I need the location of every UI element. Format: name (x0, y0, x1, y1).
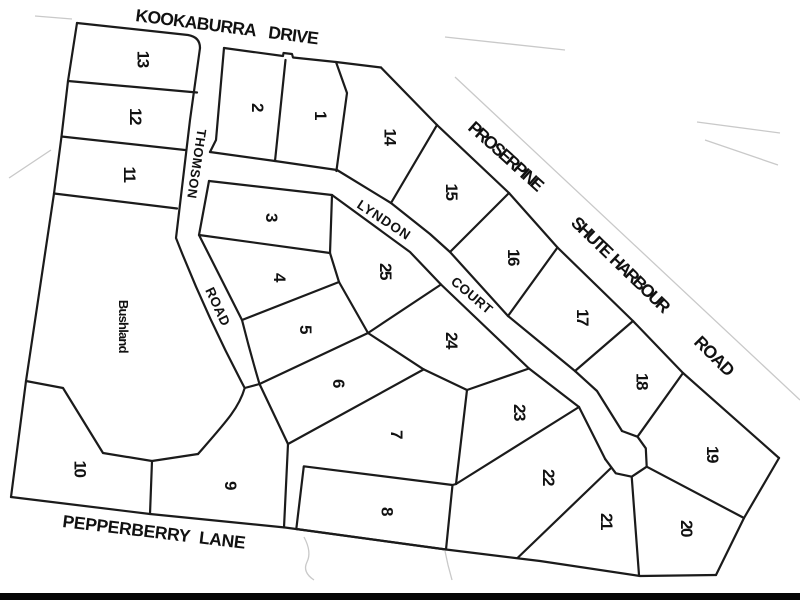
svg-text:19: 19 (703, 446, 722, 463)
svg-text:17: 17 (573, 309, 592, 326)
svg-text:13: 13 (134, 51, 153, 68)
svg-text:20: 20 (677, 520, 696, 537)
svg-text:22: 22 (539, 469, 558, 486)
svg-text:16: 16 (504, 249, 523, 266)
svg-text:21: 21 (597, 513, 616, 530)
svg-text:6: 6 (329, 379, 348, 388)
svg-text:25: 25 (376, 263, 395, 280)
svg-text:5: 5 (296, 325, 315, 334)
svg-text:1: 1 (311, 111, 330, 120)
svg-text:23: 23 (510, 404, 529, 421)
svg-text:2: 2 (248, 103, 267, 112)
svg-text:18: 18 (633, 373, 652, 390)
svg-text:11: 11 (120, 167, 139, 183)
svg-text:10: 10 (71, 461, 90, 478)
svg-text:Bushland: Bushland (116, 300, 131, 354)
svg-text:12: 12 (126, 108, 145, 125)
svg-text:8: 8 (378, 507, 397, 516)
svg-text:14: 14 (381, 129, 400, 147)
svg-text:15: 15 (442, 184, 461, 201)
svg-text:9: 9 (221, 481, 240, 490)
svg-text:24: 24 (442, 332, 461, 350)
svg-text:7: 7 (387, 430, 406, 439)
svg-text:3: 3 (262, 213, 281, 222)
